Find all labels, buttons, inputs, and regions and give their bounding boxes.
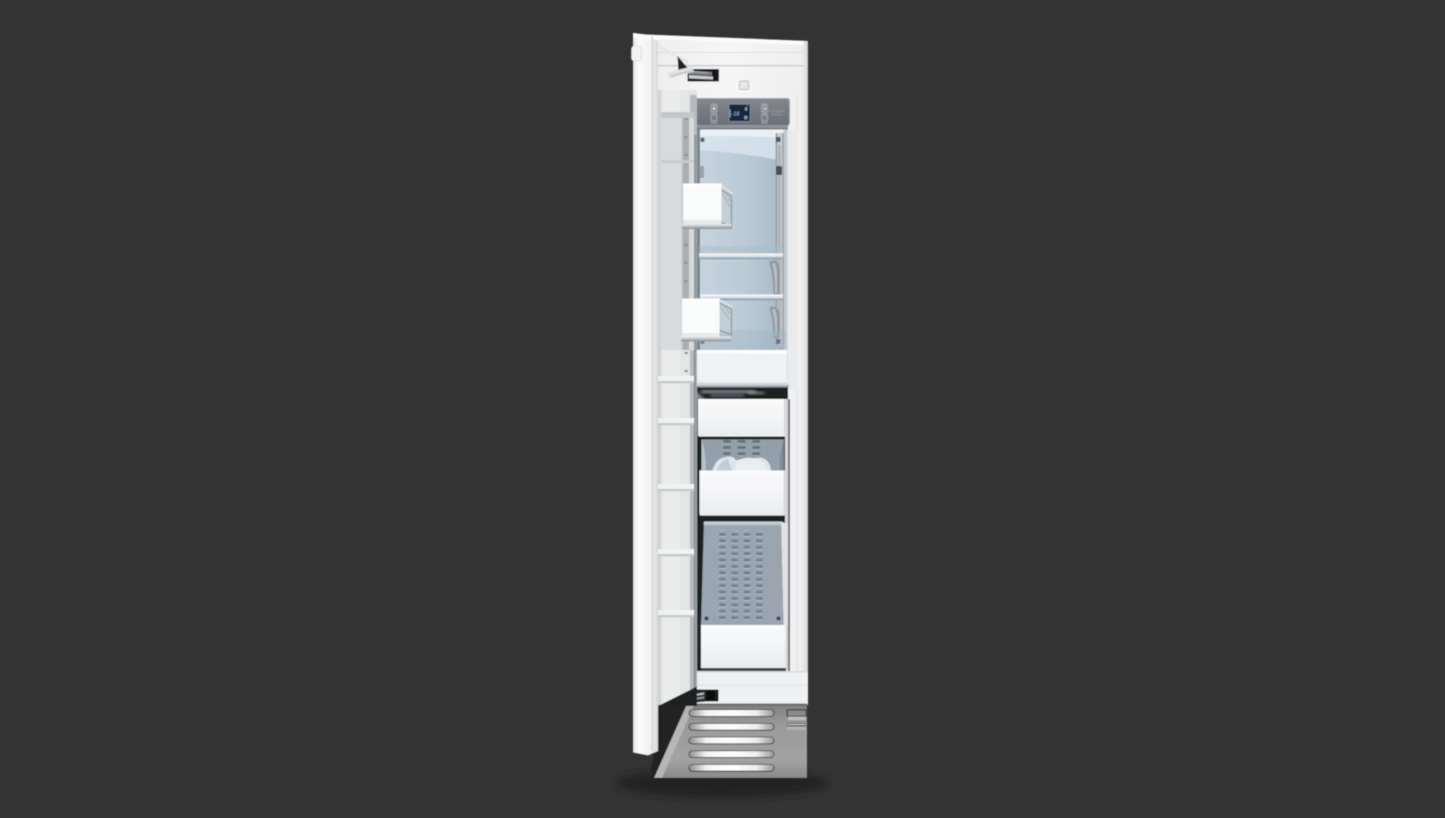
svg-text:-18: -18 (732, 112, 740, 118)
svg-text:FULGOR: FULGOR (769, 110, 786, 114)
